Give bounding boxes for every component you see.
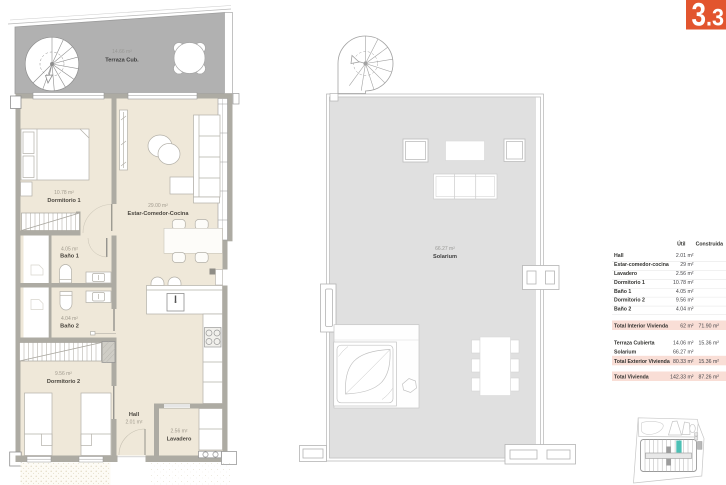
svg-text:2.56 m²: 2.56 m² [676,271,694,277]
svg-text:80.33 m²: 80.33 m² [673,359,694,365]
svg-text:2.56 m²: 2.56 m² [171,429,188,435]
svg-text:2.01 m²: 2.01 m² [676,253,694,259]
svg-text:10.78 m²: 10.78 m² [54,190,74,196]
svg-text:29.00 m²: 29.00 m² [148,203,168,209]
svg-text:66.27 m²: 66.27 m² [673,349,694,355]
svg-text:9.56 m²: 9.56 m² [55,371,72,377]
svg-text:Total Exterior Vivienda: Total Exterior Vivienda [614,359,670,365]
svg-text:9.56 m²: 9.56 m² [676,298,694,304]
svg-text:87.26 m²: 87.26 m² [699,375,720,381]
svg-text:62 m²: 62 m² [680,324,694,330]
svg-text:Dormitorio 2: Dormitorio 2 [47,379,80,385]
svg-text:4.05 m²: 4.05 m² [676,289,694,295]
svg-text:10.78 m²: 10.78 m² [673,280,694,286]
svg-text:Lavadero: Lavadero [614,271,637,277]
svg-text:Terraza Cubierta: Terraza Cubierta [614,341,655,347]
svg-text:4.05 m²: 4.05 m² [61,247,78,253]
svg-text:71.90 m²: 71.90 m² [699,324,720,330]
svg-text:Construida: Construida [696,242,723,248]
svg-text:14.66 m²: 14.66 m² [112,49,132,55]
svg-text:Estar-Comedor-Cocina: Estar-Comedor-Cocina [128,211,190,217]
svg-text:Solarium: Solarium [614,349,637,355]
svg-text:Hall: Hall [614,253,624,259]
svg-text:66.27 m²: 66.27 m² [435,246,455,252]
svg-text:Terraza Cub.: Terraza Cub. [105,58,139,64]
svg-text:Total Vivienda: Total Vivienda [614,375,649,381]
svg-text:15.36 m²: 15.36 m² [699,359,720,365]
svg-text:Baño 2: Baño 2 [60,324,79,330]
svg-text:4.04 m²: 4.04 m² [676,307,694,313]
svg-text:142.33 m²: 142.33 m² [670,375,694,381]
svg-text:Baño 2: Baño 2 [614,307,631,313]
svg-text:Dormitorio 2: Dormitorio 2 [614,298,645,304]
svg-text:Total Interior Vivienda: Total Interior Vivienda [614,324,668,330]
svg-text:Estar-comedor-cocina: Estar-comedor-cocina [614,262,669,268]
svg-text:14.06 m²: 14.06 m² [673,341,694,347]
svg-text:Útil: Útil [677,241,686,248]
svg-text:Lavadero: Lavadero [167,437,192,443]
svg-text:29 m²: 29 m² [680,262,694,268]
svg-text:4.04 m²: 4.04 m² [61,316,78,322]
svg-text:Baño 1: Baño 1 [614,289,631,295]
svg-text:2.01 m²: 2.01 m² [126,420,143,426]
svg-text:15.36 m²: 15.36 m² [699,341,720,347]
svg-text:Solarium: Solarium [433,254,457,260]
svg-text:Hall: Hall [129,412,140,418]
svg-text:.3: .3 [706,5,724,32]
svg-text:Dormitorio 1: Dormitorio 1 [47,198,80,204]
svg-text:Baño 1: Baño 1 [60,254,79,260]
svg-text:3: 3 [692,0,707,33]
svg-text:Dormitorio 1: Dormitorio 1 [614,280,645,286]
